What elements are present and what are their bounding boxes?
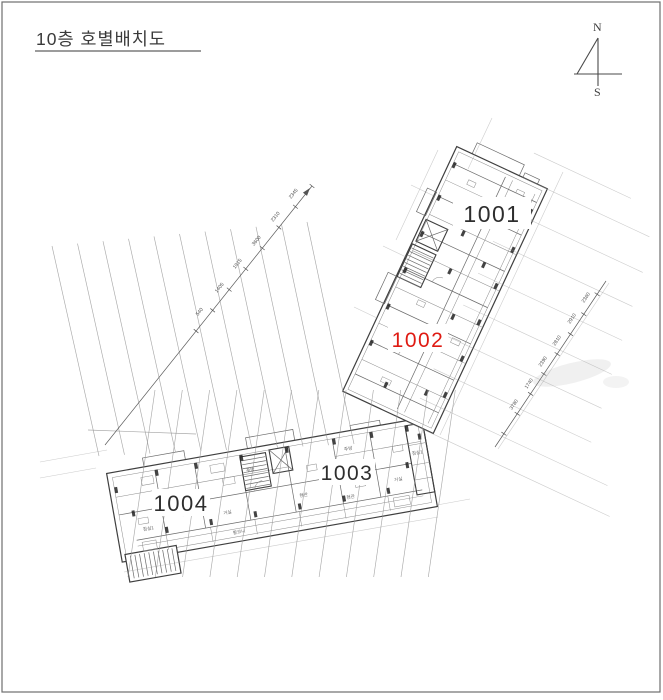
dimension-label: 3780 xyxy=(509,398,520,411)
svg-text:1001: 1001 xyxy=(463,201,520,227)
page-title: 10층 호별배치도 xyxy=(36,29,166,49)
svg-text:1004: 1004 xyxy=(154,491,209,516)
compass-arrow-icon xyxy=(574,38,622,86)
svg-text:1003: 1003 xyxy=(321,462,374,485)
building-upper-wing xyxy=(334,132,552,434)
dimension-label: 2390 xyxy=(538,355,549,368)
unit-label-1002: 1002 xyxy=(388,324,448,352)
unit-label-1001: 1001 xyxy=(453,197,531,229)
north-arrow: N S xyxy=(574,20,622,99)
dimension-chain-upper-left: 540 1405 1915 3600 2310 2345 xyxy=(105,184,314,445)
unit-label-1003: 1003 xyxy=(319,459,375,485)
dimension-label: 2345 xyxy=(288,188,300,201)
dimension-label: 3600 xyxy=(251,235,263,248)
dimension-label: 1405 xyxy=(214,282,226,295)
compass-north-label: N xyxy=(593,20,602,34)
floor-plan-canvas: 침실1 거실 주방 현관 발코니 주방 거실 현관 침실1 xyxy=(0,0,663,700)
dimension-label: 1740 xyxy=(524,377,535,390)
dimension-label: 540 xyxy=(195,307,205,317)
compass-south-label: S xyxy=(594,85,601,99)
unit-label-1004: 1004 xyxy=(152,489,210,516)
site-grid-left-fan xyxy=(52,222,354,456)
smudge xyxy=(603,376,629,388)
dimension-label: 2310 xyxy=(270,211,282,224)
dimension-label: 2810 xyxy=(552,334,563,347)
dimension-label: 2360 xyxy=(581,291,592,304)
floor-plan-page: 침실1 거실 주방 현관 발코니 주방 거실 현관 침실1 xyxy=(0,0,663,700)
dimension-label: 1915 xyxy=(232,258,244,271)
svg-text:1002: 1002 xyxy=(392,329,445,352)
